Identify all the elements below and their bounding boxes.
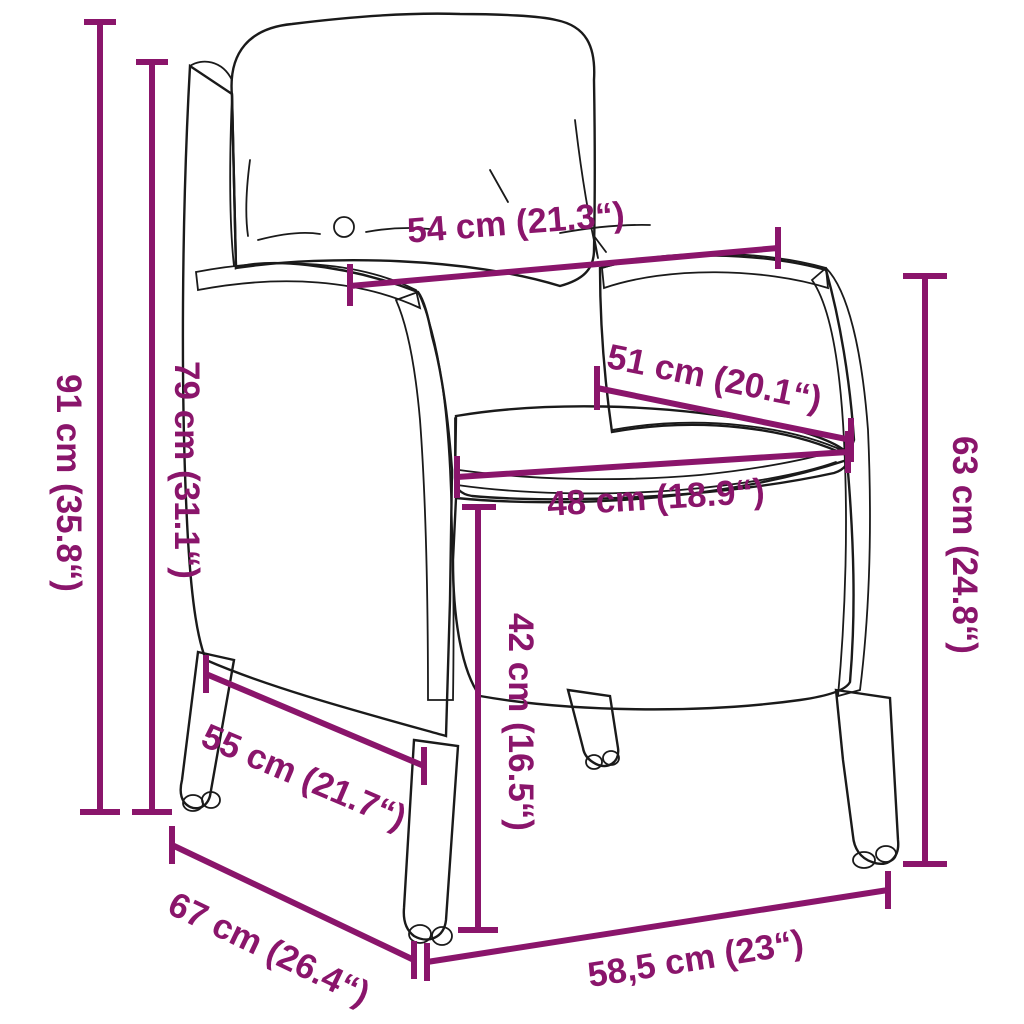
dimension-label: 63 cm (24.8“): [945, 436, 984, 654]
dimension-diagram: 91 cm (35.8“) 79 cm (31.1“) 54 cm (21.3“…: [0, 0, 1024, 1024]
dimension-base-width: 58,5 cm (23“): [427, 871, 888, 995]
dimension-line: [458, 507, 498, 930]
dimension-label: 42 cm (16.5“): [501, 613, 540, 831]
dimension-line: [132, 62, 172, 812]
front-right-leg: [836, 690, 898, 864]
dimension-total-depth: 67 cm (26.4“): [162, 826, 414, 1013]
dimension-side-depth: 55 cm (21.7“): [196, 655, 424, 837]
dimension-armrest-height: 63 cm (24.8“): [903, 276, 984, 864]
cushion-button: [334, 217, 354, 237]
left-armrest-front-rope: [396, 292, 454, 700]
dimension-label: 91 cm (35.8“): [49, 374, 88, 592]
dimension-backrest-height: 79 cm (31.1“): [132, 62, 206, 812]
dimension-label: 51 cm (20.1“): [604, 337, 825, 419]
dimension-label: 54 cm (21.3“): [406, 195, 626, 251]
dimension-seat-height: 42 cm (16.5“): [458, 507, 540, 930]
front-left-leg: [404, 740, 458, 939]
dimension-label: 55 cm (21.7“): [196, 716, 412, 837]
dimension-label: 79 cm (31.1“): [167, 361, 206, 579]
dimension-total-height: 91 cm (35.8“): [49, 22, 120, 812]
dimension-annotations: 91 cm (35.8“) 79 cm (31.1“) 54 cm (21.3“…: [49, 22, 984, 1013]
front-right-foot: [853, 852, 875, 868]
dimension-line: [903, 276, 947, 864]
chair-left-side-panel: [183, 66, 452, 736]
front-right-foot: [876, 846, 896, 862]
dimension-label: 67 cm (26.4“): [162, 884, 375, 1013]
